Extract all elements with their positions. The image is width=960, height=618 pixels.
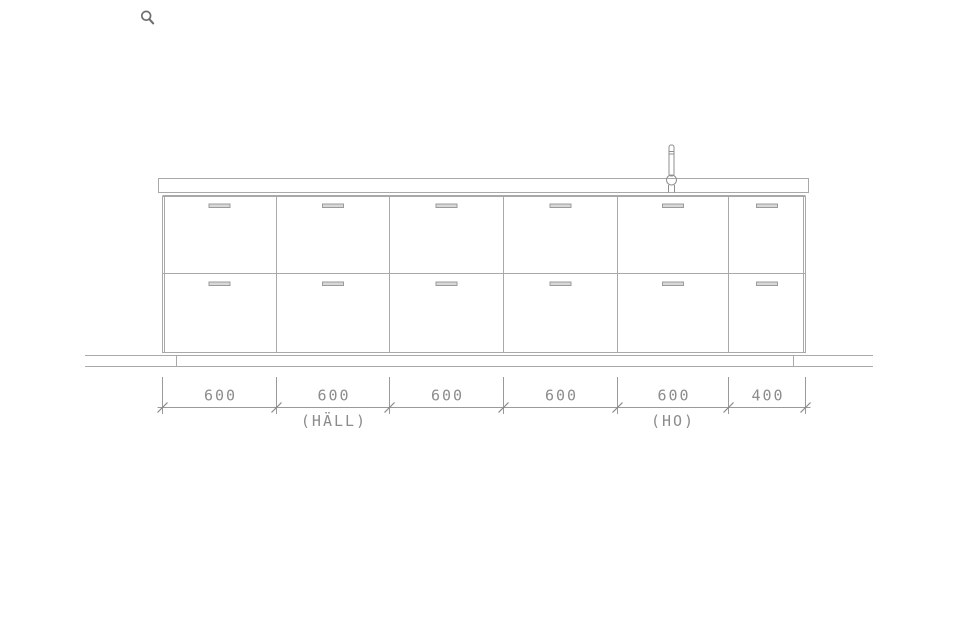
drawer-handle [550,204,571,208]
dimension-label: 600 [317,387,350,405]
cabinet-fronts [163,197,806,353]
drawer-handle [663,204,684,208]
dimension-label: 600 [657,387,690,405]
drawer-handle [323,282,344,286]
dimension-label: 400 [751,387,784,405]
drawer-handle [550,282,571,286]
kitchen-elevation-drawing: 600 600 600 600 600 400 (HÄLL) (HO) [0,0,960,618]
dimension-labels: 600 600 600 600 600 400 (HÄLL) (HO) [204,387,785,431]
dimension-label: 600 [431,387,464,405]
drawer-handle [757,282,778,286]
countertop [159,179,809,196]
drawer-handle [436,204,457,208]
dimension-label: 600 [545,387,578,405]
drawer-handle [209,282,230,286]
drawer-handle [757,204,778,208]
dimension-lines [158,377,811,414]
image-viewer: 600 600 600 600 600 400 (HÄLL) (HO) [0,0,960,618]
floor-and-plinth [85,356,873,367]
dimension-label: 600 [204,387,237,405]
drawer-handle [436,282,457,286]
faucet [667,145,677,193]
annotation-sink: (HO) [651,412,695,430]
drawer-handle [323,204,344,208]
drawer-handle [663,282,684,286]
annotation-hob: (HÄLL) [301,411,367,430]
drawer-handle [209,204,230,208]
